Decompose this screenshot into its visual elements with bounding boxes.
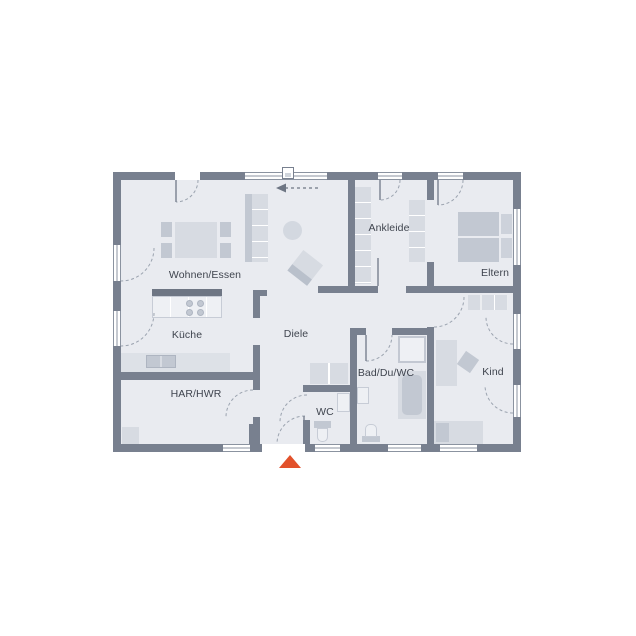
room-label-har-hwr: HAR/HWR: [171, 388, 222, 400]
room-label-ankleide: Ankleide: [368, 222, 409, 234]
window-swing-arc: [121, 248, 154, 281]
direction-arrow: [276, 184, 318, 193]
window-swing-arc: [485, 385, 513, 413]
floor-plan: Wohnen/Essen Küche Diele HAR/HWR WC Bad/…: [0, 0, 636, 636]
room-label-diele: Diele: [284, 328, 308, 340]
entrance-door-arc: [277, 416, 305, 444]
window-swing-arc: [486, 317, 513, 344]
door-arc: [366, 335, 392, 361]
window-swing-arc: [438, 180, 463, 205]
room-label-wc: WC: [316, 406, 334, 418]
entrance-marker: [279, 455, 301, 468]
section-marker: [282, 167, 294, 179]
room-label-bad-du-wc: Bad/Du/WC: [358, 367, 414, 379]
room-label-kueche: Küche: [172, 329, 202, 341]
door-swing-overlay: [0, 0, 636, 636]
door-arc: [226, 390, 253, 417]
room-label-eltern: Eltern: [481, 267, 509, 279]
door-arc: [176, 180, 198, 202]
window-swing-arc: [121, 313, 154, 346]
room-label-wohnen-essen: Wohnen/Essen: [169, 269, 241, 281]
window-swing-arc: [380, 180, 400, 200]
room-label-kind: Kind: [482, 366, 503, 378]
door-arc: [434, 297, 464, 327]
